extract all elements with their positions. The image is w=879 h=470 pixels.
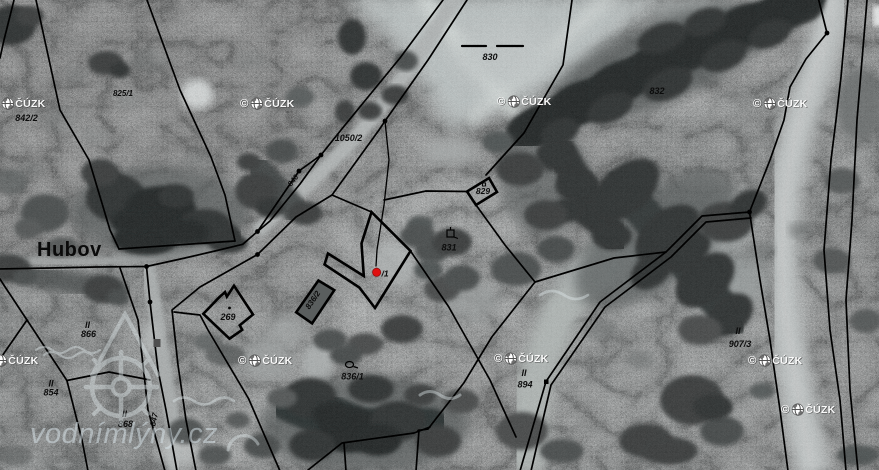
svg-text:©: © <box>240 98 249 110</box>
svg-text:ČÚZK: ČÚZK <box>15 97 45 110</box>
svg-text:©: © <box>753 98 762 110</box>
svg-text:836/1: 836/1 <box>341 372 364 382</box>
svg-text:©: © <box>238 355 247 367</box>
svg-text:1050/2: 1050/2 <box>335 133 363 143</box>
svg-text:269: 269 <box>219 312 235 322</box>
svg-text:ČÚZK: ČÚZK <box>264 97 294 110</box>
svg-text:/1: /1 <box>380 269 388 279</box>
svg-text:854: 854 <box>43 388 58 398</box>
svg-text:907/3: 907/3 <box>729 339 752 349</box>
svg-text:ČÚZK: ČÚZK <box>805 403 835 416</box>
svg-text:II: II <box>521 368 527 378</box>
svg-text:II: II <box>735 326 741 336</box>
svg-text:ČÚZK: ČÚZK <box>777 97 807 110</box>
svg-text:Hubov: Hubov <box>37 239 102 261</box>
svg-text:ČÚZK: ČÚZK <box>262 354 292 367</box>
svg-text:©: © <box>748 355 757 367</box>
svg-text:825/1: 825/1 <box>113 89 134 98</box>
svg-text:ČÚZK: ČÚZK <box>772 354 802 367</box>
svg-text:832: 832 <box>649 86 664 96</box>
svg-text:894: 894 <box>517 380 532 390</box>
svg-text:842/2: 842/2 <box>15 113 38 123</box>
svg-text:831: 831 <box>441 243 456 253</box>
svg-text:866: 866 <box>81 329 97 339</box>
svg-text:829: 829 <box>476 186 490 196</box>
svg-text:830: 830 <box>482 52 497 62</box>
svg-text:ČÚZK: ČÚZK <box>518 352 548 365</box>
svg-text:©: © <box>497 96 506 108</box>
svg-text:ČÚZK: ČÚZK <box>8 354 38 367</box>
svg-text:ČÚZK: ČÚZK <box>521 95 551 108</box>
svg-text:©: © <box>781 404 790 416</box>
svg-text:©: © <box>494 353 503 365</box>
svg-text:vodnímlýny.cz: vodnímlýny.cz <box>30 418 218 450</box>
